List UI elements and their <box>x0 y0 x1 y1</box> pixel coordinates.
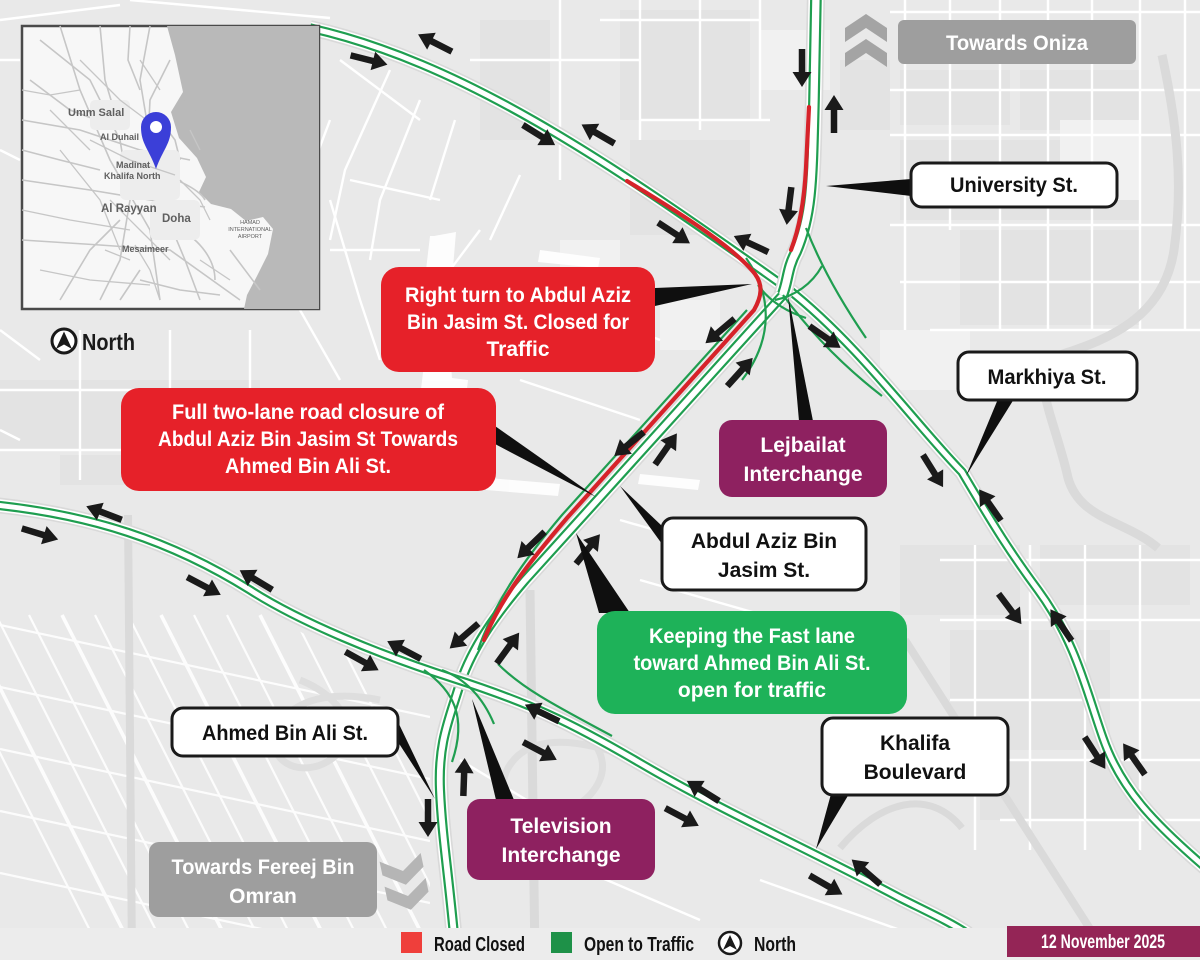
svg-text:Mesaimeer: Mesaimeer <box>122 244 169 254</box>
svg-text:Towards Fereej Bin: Towards Fereej Bin <box>172 856 355 879</box>
svg-text:University St.: University St. <box>950 174 1078 197</box>
svg-text:Madinat: Madinat <box>116 160 150 170</box>
svg-text:Interchange: Interchange <box>743 463 862 486</box>
svg-text:Khalifa North: Khalifa North <box>104 171 161 181</box>
svg-text:Khalifa: Khalifa <box>880 732 950 755</box>
svg-text:Bin Jasim St. Closed for: Bin Jasim St. Closed for <box>407 311 629 334</box>
svg-text:Open to Traffic: Open to Traffic <box>584 934 694 956</box>
svg-text:open for traffic: open for traffic <box>678 679 826 702</box>
svg-text:Abdul Aziz Bin Jasim St Toward: Abdul Aziz Bin Jasim St Towards <box>158 428 458 451</box>
svg-text:HAMAD: HAMAD <box>240 220 260 226</box>
svg-text:Ahmed Bin Ali St.: Ahmed Bin Ali St. <box>225 455 391 478</box>
svg-text:toward Ahmed Bin Ali St.: toward Ahmed Bin Ali St. <box>634 652 871 675</box>
svg-text:Interchange: Interchange <box>501 844 620 867</box>
svg-text:Television: Television <box>510 815 611 838</box>
svg-text:Markhiya St.: Markhiya St. <box>988 366 1107 389</box>
svg-text:North: North <box>82 329 135 355</box>
svg-text:12 November 2025: 12 November 2025 <box>1041 932 1165 953</box>
svg-text:Right turn to Abdul Aziz: Right turn to Abdul Aziz <box>405 284 631 307</box>
svg-text:Doha: Doha <box>162 213 191 225</box>
svg-text:Towards Oniza: Towards Oniza <box>946 32 1088 55</box>
svg-text:Jasim St.: Jasim St. <box>718 559 810 582</box>
svg-text:AIRPORT: AIRPORT <box>238 234 263 240</box>
svg-text:Umm Salal: Umm Salal <box>68 107 124 119</box>
svg-text:Al Duhail: Al Duhail <box>100 132 139 142</box>
svg-text:Boulevard: Boulevard <box>864 761 967 784</box>
svg-text:North: North <box>754 934 796 956</box>
svg-text:Omran: Omran <box>229 885 297 908</box>
svg-text:Al Rayyan: Al Rayyan <box>101 203 157 215</box>
svg-text:Lejbailat: Lejbailat <box>760 434 845 457</box>
svg-text:Abdul Aziz Bin: Abdul Aziz Bin <box>691 530 837 553</box>
svg-text:Traffic: Traffic <box>486 338 549 361</box>
svg-text:Full two-lane road closure of: Full two-lane road closure of <box>172 401 445 424</box>
svg-text:INTERNATIONAL: INTERNATIONAL <box>228 227 272 233</box>
svg-text:Road Closed: Road Closed <box>434 934 525 956</box>
svg-text:Ahmed Bin Ali St.: Ahmed Bin Ali St. <box>202 722 368 745</box>
svg-text:Keeping the Fast lane: Keeping the Fast lane <box>649 625 855 648</box>
